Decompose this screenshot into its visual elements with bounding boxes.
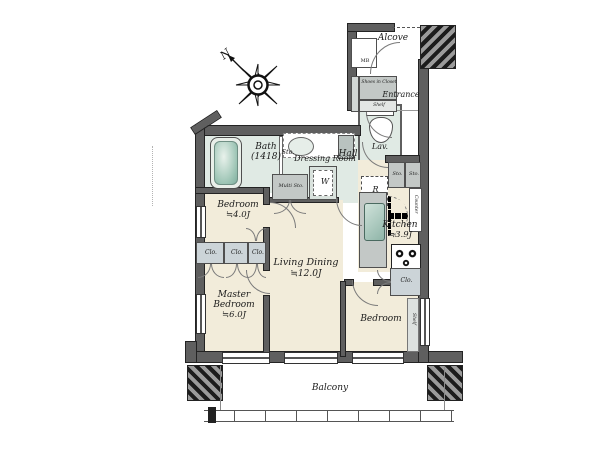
closet-2: Clo. — [224, 242, 248, 264]
window-bedroom-right-side — [420, 298, 430, 346]
multi-storage-doors — [274, 200, 306, 214]
washer-space: W — [309, 166, 337, 200]
stove — [391, 244, 421, 270]
hatch-block-balcony-right — [428, 366, 462, 400]
multi-storage-label: Multi Sto. — [273, 184, 309, 190]
shelf-right-label: Shelf — [411, 313, 416, 325]
balcony-railing — [204, 410, 454, 422]
bathtub — [210, 137, 242, 189]
closet-2-label: Clo. — [225, 250, 249, 257]
closet-2-doors — [226, 264, 248, 278]
window-living-balcony — [284, 352, 338, 364]
kitchen-counter-label: Counter — [413, 195, 418, 214]
balcony-edge-right — [444, 366, 445, 410]
shoes-closet-narrow — [351, 76, 359, 112]
compass-rose: N — [218, 46, 300, 122]
wall-bedroom-right-left — [341, 282, 345, 356]
closet-3-label: Clo. — [249, 250, 267, 257]
shoes-closet-label: Shoes in Closet — [360, 80, 398, 85]
closet-3: Clo. — [248, 242, 266, 264]
kitchen-counter-strip: Counter — [409, 188, 422, 232]
closet-1: Clo. — [196, 242, 224, 264]
window-bedroom-small-left — [196, 206, 206, 238]
balcony-edge-left — [220, 366, 221, 410]
wall-mid-vertical-c — [264, 296, 269, 356]
hatch-block-balcony-left — [188, 366, 222, 400]
shoes-shelf: Shelf — [359, 100, 397, 112]
wall-mid-vertical-a — [264, 188, 269, 204]
balcony-railing-post — [208, 407, 216, 423]
closet-right-label: Clo. — [391, 278, 422, 285]
shoes-shelf-label: Shelf — [360, 103, 398, 108]
hatch-block-top-right — [421, 26, 455, 68]
window-bedroom-right-balcony — [352, 352, 404, 364]
shoes-closet: Shoes in Closet — [359, 76, 397, 100]
floor-plan: N — [0, 0, 600, 450]
window-master-balcony — [222, 352, 270, 364]
wall-alcove-top — [348, 24, 394, 31]
kitchen-sink — [364, 203, 385, 241]
bathtub-basin — [214, 141, 238, 185]
washer-dashed-box: W — [313, 170, 333, 196]
boundary-dotted-line — [152, 146, 154, 206]
kitchen-sink-counter — [359, 192, 387, 268]
washer-label: W — [314, 178, 336, 187]
window-master-left — [196, 294, 206, 334]
kitchen-storage-a: Sto. — [388, 162, 405, 188]
vanity-sink — [288, 137, 314, 156]
closet-small-doors-up — [246, 228, 266, 241]
shelf-right-strip: Shelf — [407, 298, 419, 352]
wall-bottom-left-step — [186, 342, 196, 362]
kitchen-storage-a-label: Sto. — [389, 172, 406, 178]
kitchen-storage-b: Sto. — [405, 162, 421, 188]
closet-right: Clo. — [390, 268, 421, 296]
vanity-cabinet — [338, 135, 354, 159]
closet-1-label: Clo. — [197, 250, 225, 257]
closet-1-doors — [198, 264, 224, 278]
closet-3-doors — [248, 264, 266, 278]
balcony-label: Balcony — [298, 383, 362, 393]
closet-right-doors — [377, 270, 391, 294]
multi-storage: Multi Sto. — [272, 174, 308, 200]
kitchen-storage-b-label: Sto. — [406, 172, 422, 178]
